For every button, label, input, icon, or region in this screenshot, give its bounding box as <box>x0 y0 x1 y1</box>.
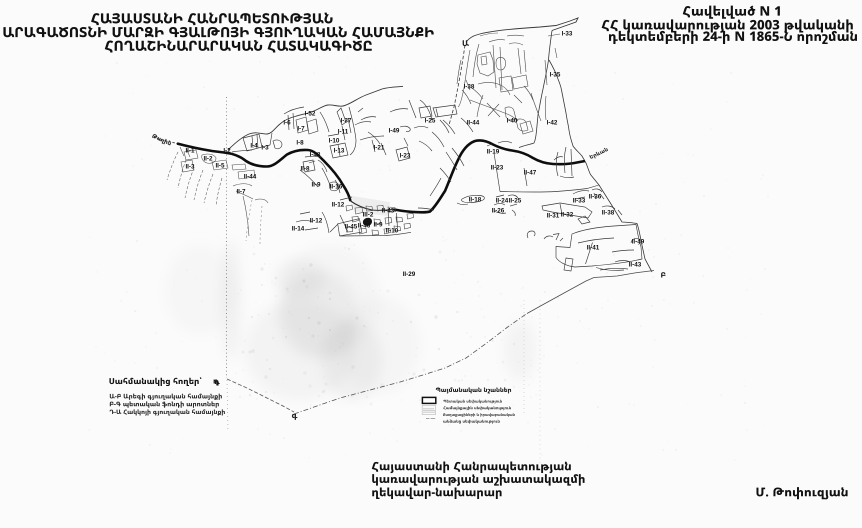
svg-text:III-2: III-2 <box>363 211 374 218</box>
svg-text:I-25: I-25 <box>425 117 436 124</box>
svg-text:I-48: I-48 <box>310 151 321 158</box>
svg-text:I-7: I-7 <box>297 125 305 132</box>
svg-text:I-38: I-38 <box>464 83 475 90</box>
svg-text:I-2: I-2 <box>223 147 231 154</box>
svg-text:II-5: II-5 <box>215 162 225 169</box>
svg-text:I-23: I-23 <box>400 152 411 159</box>
svg-text:I-4: I-4 <box>250 142 258 149</box>
svg-text:II-29: II-29 <box>403 271 416 278</box>
svg-text:II-26: II-26 <box>492 207 505 214</box>
svg-text:I-11: I-11 <box>338 128 349 135</box>
svg-text:II-16: II-16 <box>330 183 343 190</box>
svg-text:I-33: I-33 <box>562 30 573 37</box>
svg-text:II-46: II-46 <box>358 222 371 229</box>
svg-text:II-45: II-45 <box>345 223 358 230</box>
svg-text:II-32: II-32 <box>561 211 574 218</box>
svg-text:II-47: II-47 <box>524 169 537 176</box>
svg-text:I-49: I-49 <box>389 127 400 134</box>
svg-text:II-43: II-43 <box>382 207 395 214</box>
svg-text:II-23: II-23 <box>491 164 504 171</box>
svg-text:II-36: II-36 <box>589 193 602 200</box>
svg-text:II-18: II-18 <box>469 196 482 203</box>
svg-text:II-9: II-9 <box>311 181 321 188</box>
svg-text:II-2: II-2 <box>203 155 213 162</box>
svg-text:I-21: I-21 <box>374 144 385 151</box>
svg-text:II-1: II-1 <box>185 147 195 154</box>
svg-text:I-52: I-52 <box>305 110 316 117</box>
svg-text:II-43: II-43 <box>629 261 642 268</box>
svg-text:II-38: II-38 <box>602 209 615 216</box>
svg-text:II-49: II-49 <box>632 238 645 245</box>
svg-text:II-44: II-44 <box>467 119 480 126</box>
svg-text:II-19: II-19 <box>487 148 500 155</box>
svg-text:II-7: II-7 <box>236 188 246 195</box>
svg-text:II-9: II-9 <box>373 221 383 228</box>
svg-text:II-33: II-33 <box>573 197 586 204</box>
svg-text:I-6: I-6 <box>283 119 291 126</box>
svg-text:II-41: II-41 <box>587 244 600 251</box>
svg-text:I-37: I-37 <box>341 117 352 124</box>
svg-text:I-8: I-8 <box>296 139 304 146</box>
svg-text:I-10: I-10 <box>329 137 340 144</box>
svg-text:I-42: I-42 <box>547 119 558 126</box>
svg-text:II-44: II-44 <box>244 173 257 180</box>
svg-text:II-14: II-14 <box>292 225 305 232</box>
svg-text:I-13: I-13 <box>334 147 345 154</box>
svg-text:II-24: II-24 <box>496 197 509 204</box>
svg-text:II-8: II-8 <box>300 165 310 172</box>
svg-text:I-35: I-35 <box>550 71 561 78</box>
svg-text:II-12: II-12 <box>332 201 345 208</box>
svg-text:II-10: II-10 <box>386 227 399 234</box>
svg-text:II-31: II-31 <box>547 212 560 219</box>
svg-text:II-12: II-12 <box>310 217 323 224</box>
svg-text:I-3: I-3 <box>261 144 269 151</box>
svg-text:I-40: I-40 <box>507 117 518 124</box>
svg-text:II-3: II-3 <box>185 163 195 170</box>
svg-text:II-25: II-25 <box>509 197 522 204</box>
